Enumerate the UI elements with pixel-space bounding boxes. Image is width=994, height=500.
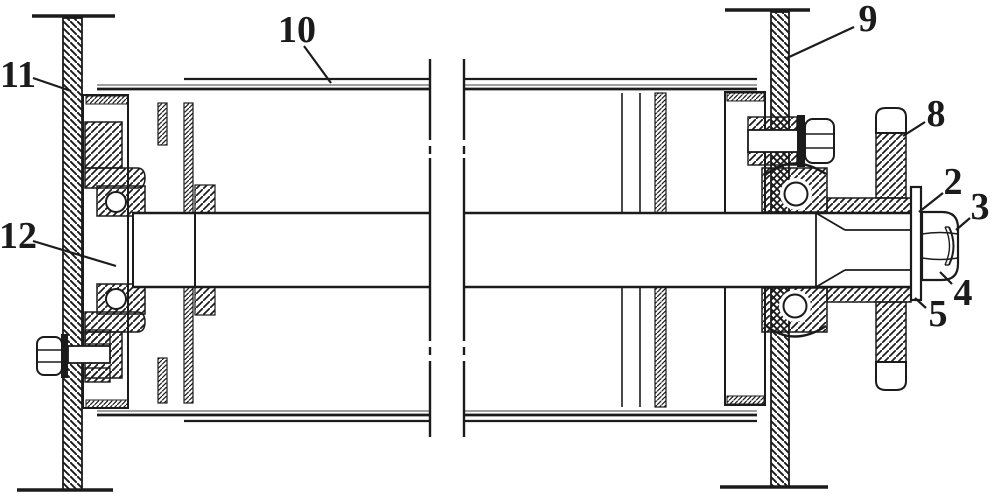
- callout-number-3: 3: [971, 186, 990, 228]
- technical-drawing-page: 109111282345: [0, 0, 994, 500]
- right-bearing-ball-bottom: [784, 295, 807, 318]
- bolt-shank: [68, 346, 110, 363]
- break-lines: [430, 50, 464, 450]
- left-bearing-ball-bottom: [106, 289, 126, 309]
- shaft-washer: [911, 187, 921, 300]
- left-bearing-ball-top: [106, 192, 126, 212]
- callout-number-12: 12: [0, 215, 37, 257]
- hex-bolt-head: [37, 337, 62, 375]
- hex-bolt-head: [805, 119, 834, 163]
- wheel-web-bottom: [876, 302, 906, 362]
- callout-number-9: 9: [859, 0, 878, 40]
- bolt-washer: [797, 115, 805, 167]
- right-anchor-bolt: [748, 115, 834, 167]
- callout-number-5: 5: [929, 293, 948, 335]
- callout-number-4: 4: [954, 272, 973, 314]
- wheel-rim-top: [876, 108, 906, 133]
- right-bearing-ball-top: [785, 183, 808, 206]
- drum-assembly-drawing: 109111282345: [0, 0, 994, 500]
- bolt-shank: [748, 130, 798, 152]
- callout-number-11: 11: [0, 54, 36, 96]
- wheel-hub-bottom: [827, 287, 911, 302]
- wheel-hub-top: [827, 198, 911, 213]
- callout-number-10: 10: [278, 9, 316, 51]
- callout-number-8: 8: [927, 93, 946, 135]
- callout-number-2: 2: [944, 161, 963, 203]
- wheel-web-top: [876, 133, 906, 198]
- shaft: [133, 213, 911, 287]
- wheel-rim-bottom: [876, 362, 906, 390]
